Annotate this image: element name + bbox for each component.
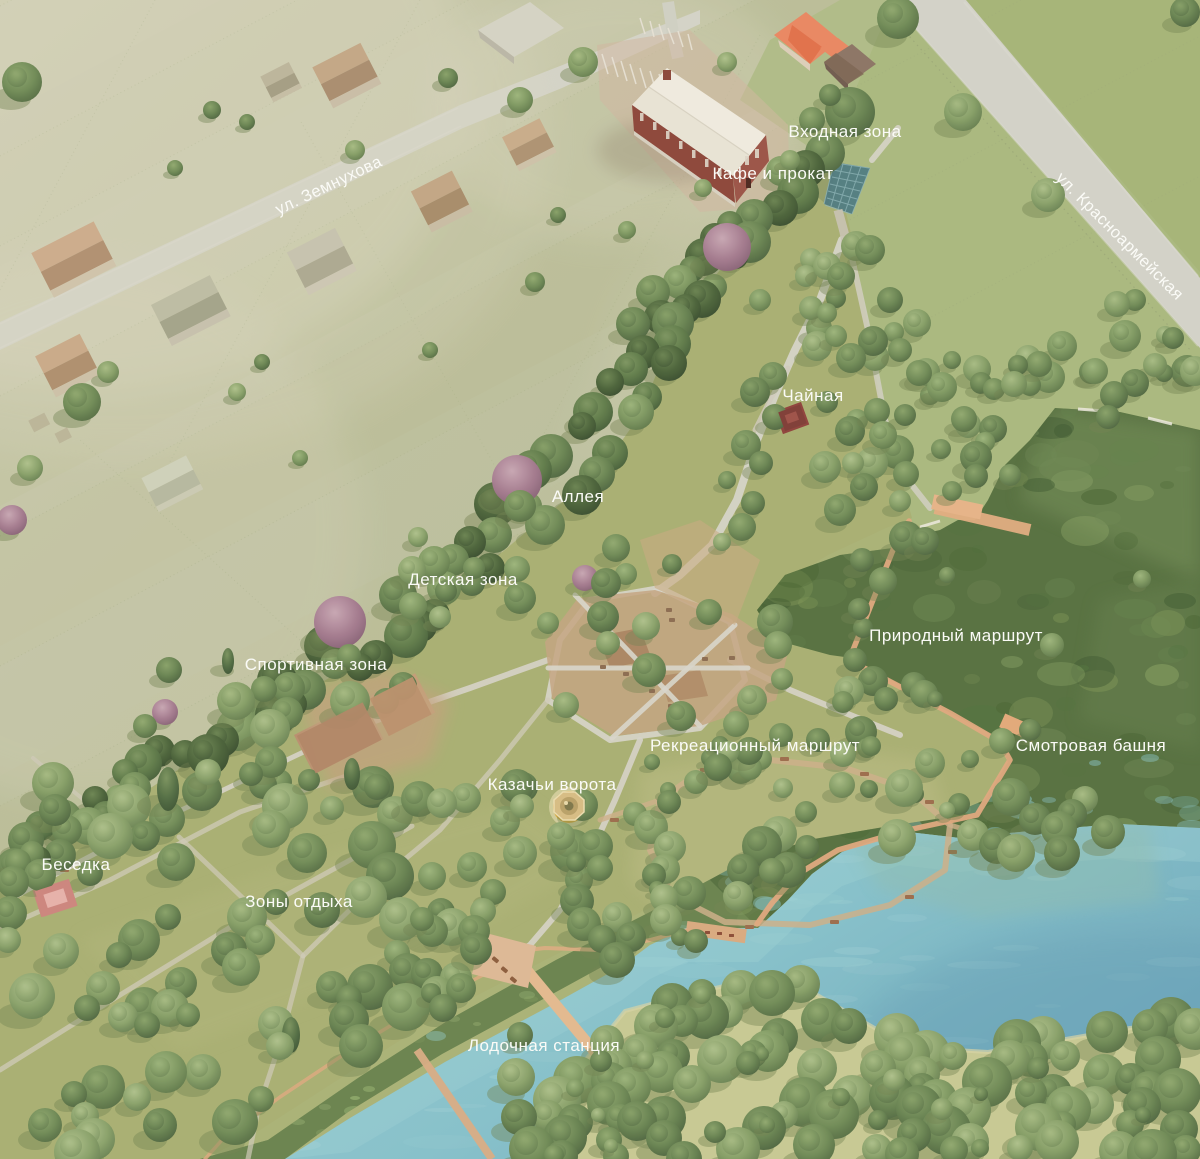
svg-text:Детская зона: Детская зона xyxy=(408,570,518,589)
svg-text:Спортивная зона: Спортивная зона xyxy=(245,655,388,674)
svg-text:Зоны отдыха: Зоны отдыха xyxy=(245,892,353,911)
svg-text:Казачьи ворота: Казачьи ворота xyxy=(488,775,617,794)
svg-text:Смотровая башня: Смотровая башня xyxy=(1016,736,1167,755)
svg-text:Аллея: Аллея xyxy=(552,487,604,506)
svg-text:Рекреационный маршрут: Рекреационный маршрут xyxy=(650,736,860,755)
svg-text:Кафе и прокат: Кафе и прокат xyxy=(712,164,833,183)
svg-text:Лодочная станция: Лодочная станция xyxy=(468,1036,620,1055)
svg-text:Природный маршрут: Природный маршрут xyxy=(869,626,1043,645)
svg-text:Входная зона: Входная зона xyxy=(788,122,901,141)
svg-text:Беседка: Беседка xyxy=(42,855,111,874)
svg-text:Чайная: Чайная xyxy=(782,386,843,405)
